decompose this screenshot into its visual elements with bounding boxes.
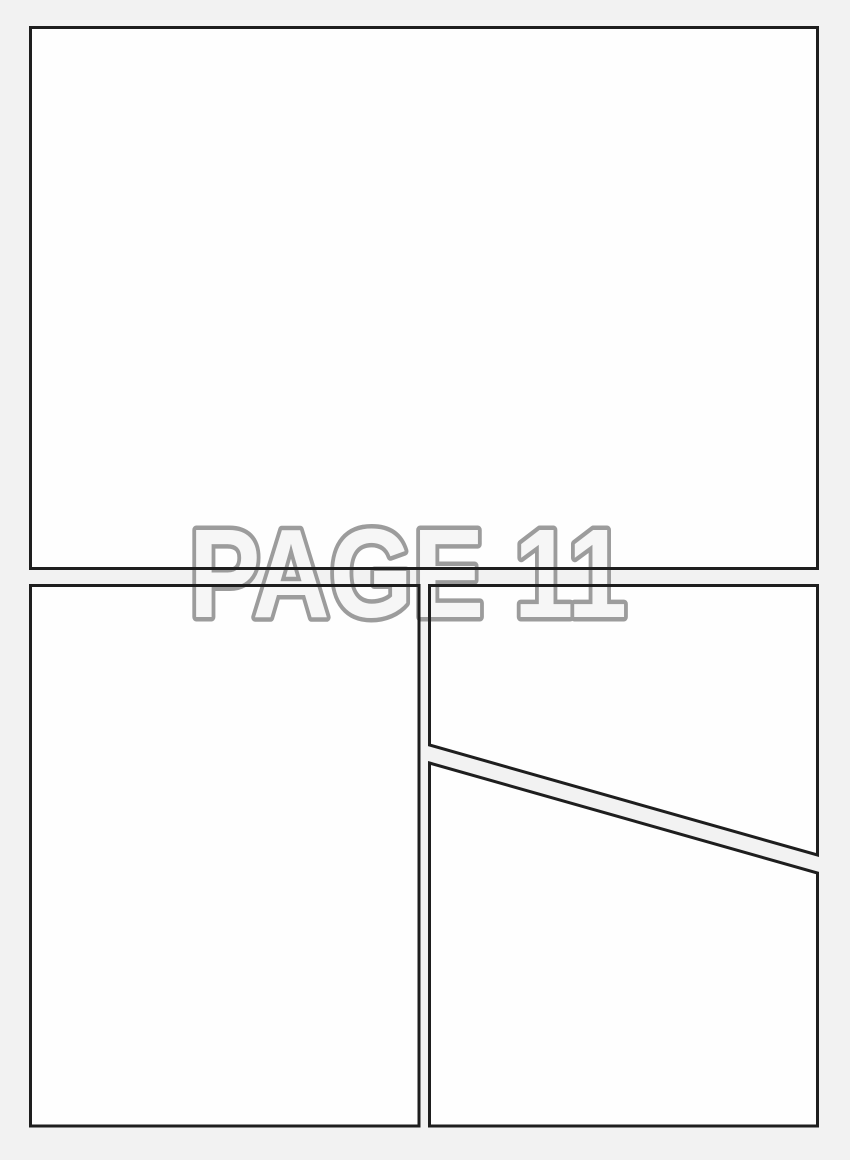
- comic-page-template: PAGE 11: [0, 0, 850, 1160]
- page-canvas: PAGE 11: [0, 0, 850, 1160]
- page-watermark: PAGE 11: [189, 503, 627, 644]
- page-background: { "watermark": { "text": "PAGE 11" }, "c…: [0, 0, 850, 1160]
- panel-bottom-left: [31, 586, 420, 1127]
- panel-top: [31, 28, 818, 569]
